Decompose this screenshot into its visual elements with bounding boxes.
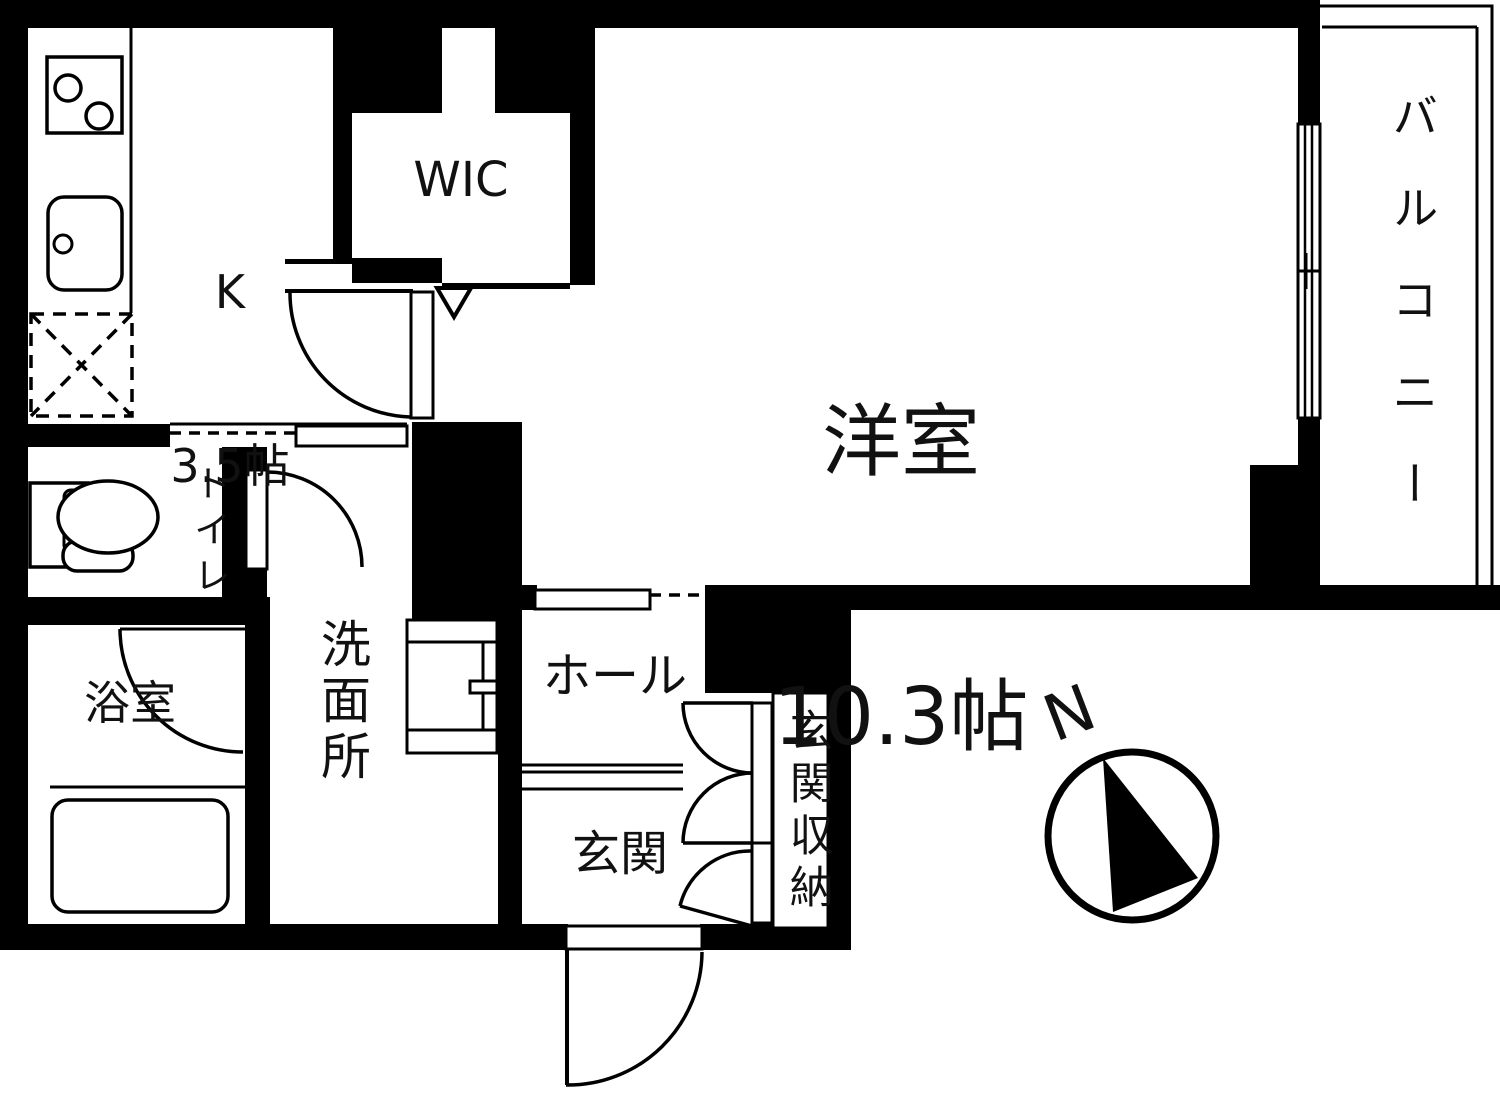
hall-label: ホール [525,648,705,706]
bathroom-label: 浴室 [50,676,210,731]
stove-icon [47,57,122,133]
kitchen-name: K [130,264,330,322]
front-door [566,926,702,1085]
sliding-window-icon [1298,124,1320,418]
compass-icon [1048,752,1216,920]
door-swing-arc [680,851,751,906]
kitchen-sink-icon [48,197,122,290]
toilet-label: トイレ [186,464,230,602]
entrance-label: 玄関 [555,826,685,884]
western-room-name: 洋室 [745,397,1057,489]
sliding-door-room [535,590,708,609]
bathtub-icon [50,787,245,912]
vanity-sink-icon [407,620,497,753]
entrance-storage-doors [680,703,753,926]
entrance-storage-label: 玄関収納 [780,708,833,916]
wic-door-marker-icon [437,288,471,317]
door-swing-arc [683,773,753,843]
refrigerator-space-icon [31,314,132,416]
balcony-label: バルコニー [1384,92,1439,552]
floor-plan: K 3.5帖 WIC 洋室 10.3帖 バルコニー トイレ 浴室 洗面所 ホール… [0,0,1500,1093]
washroom-label: 洗面所 [312,618,372,786]
entrance-step-lines [522,765,683,789]
wic-label: WIC [396,152,526,210]
door-swing-arc [566,952,702,1085]
door-swing-arc [683,703,753,773]
